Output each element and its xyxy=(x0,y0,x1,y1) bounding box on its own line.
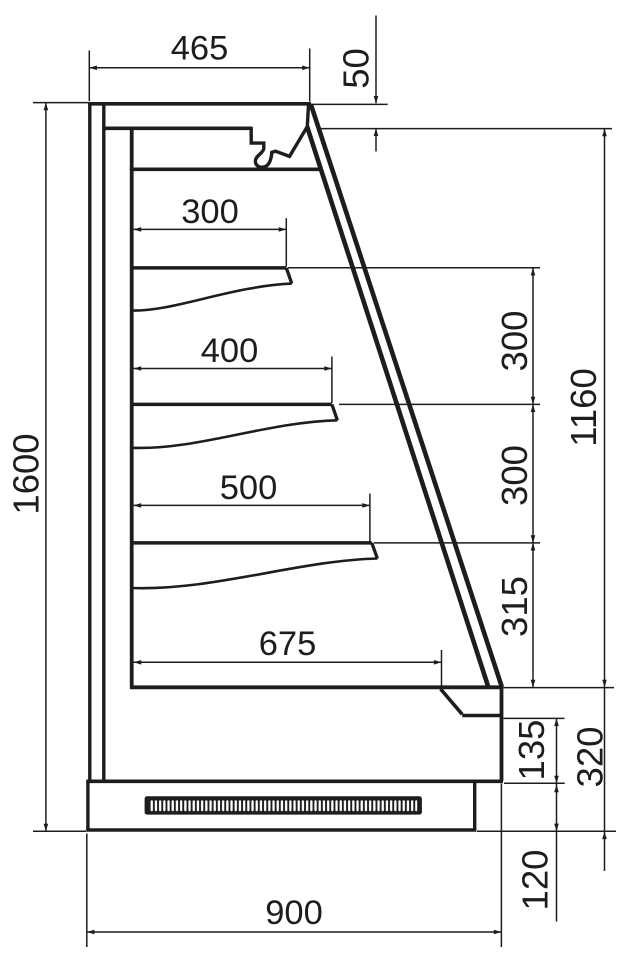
svg-text:300: 300 xyxy=(181,193,239,231)
svg-text:320: 320 xyxy=(570,727,611,788)
svg-text:300: 300 xyxy=(494,311,535,372)
svg-text:135: 135 xyxy=(511,720,552,781)
svg-text:900: 900 xyxy=(265,894,323,932)
svg-text:500: 500 xyxy=(220,469,278,507)
svg-text:1160: 1160 xyxy=(563,368,604,447)
svg-text:300: 300 xyxy=(494,445,535,506)
svg-text:315: 315 xyxy=(494,576,535,637)
svg-text:50: 50 xyxy=(336,48,377,89)
svg-text:1600: 1600 xyxy=(6,433,47,514)
svg-text:465: 465 xyxy=(171,29,229,67)
svg-text:120: 120 xyxy=(515,850,556,911)
svg-text:400: 400 xyxy=(201,332,259,370)
svg-text:675: 675 xyxy=(259,625,317,663)
